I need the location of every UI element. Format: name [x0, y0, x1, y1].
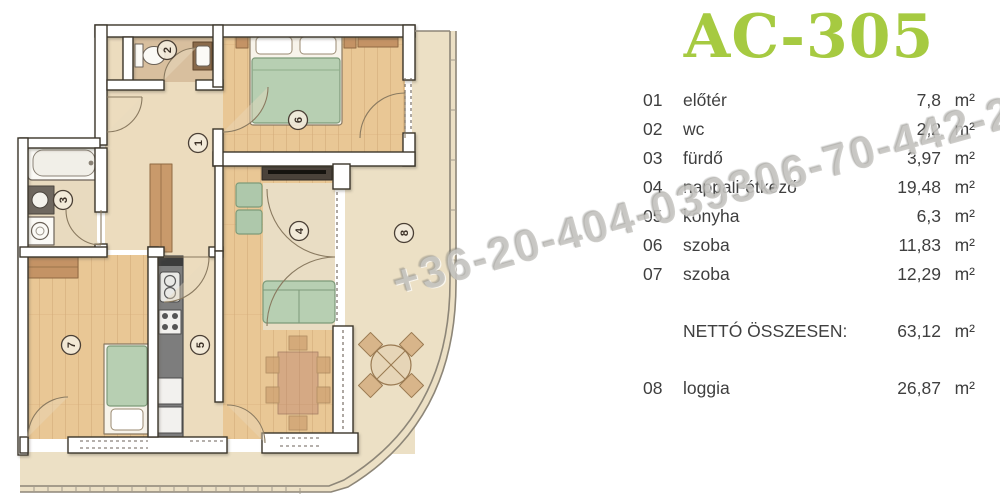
legend-row: 06 szoba 11,83 m²: [643, 231, 975, 260]
legend-rows: 01 előtér 7,8 m² 02 wc 2,2 m² 03 fürdő 3…: [643, 86, 975, 403]
room-name: wc: [683, 119, 865, 140]
room-number: 08: [643, 378, 683, 399]
room-area: 7,8: [865, 90, 941, 111]
room-marker-nappali: 4: [290, 222, 309, 241]
legend-row: 05 konyha 6,3 m²: [643, 202, 975, 231]
room-unit: m²: [941, 119, 975, 140]
room-unit: m²: [941, 177, 975, 198]
legend-row: 04 nappali-étkező 19,48 m²: [643, 173, 975, 202]
room-marker-szoba6: 6: [289, 111, 308, 130]
room-name: szoba: [683, 235, 865, 256]
room-marker-furdo: 3: [54, 191, 73, 210]
armchair-1: [236, 183, 262, 207]
legend-row: 02 wc 2,2 m²: [643, 115, 975, 144]
svg-text:5: 5: [195, 342, 207, 348]
room-area: 11,83: [865, 235, 941, 256]
room-number: 02: [643, 119, 683, 140]
legend-total-row: NETTÓ ÖSSZESEN: 63,12 m²: [643, 317, 975, 346]
room-number: 06: [643, 235, 683, 256]
room-marker-loggia: 8: [395, 224, 414, 243]
room-unit: m²: [941, 264, 975, 285]
room-name: előtér: [683, 90, 865, 111]
room-unit: m²: [941, 378, 975, 399]
svg-text:4: 4: [294, 227, 306, 234]
floors: [20, 31, 456, 492]
legend-row: 01 előtér 7,8 m²: [643, 86, 975, 115]
room-marker-wc: 2: [158, 41, 177, 60]
room-unit: m²: [941, 90, 975, 111]
room-number: 04: [643, 177, 683, 198]
room-marker-szoba7: 7: [62, 336, 81, 355]
room-name: nappali-étkező: [683, 177, 865, 198]
svg-text:7: 7: [66, 342, 78, 348]
room-area: 6,3: [865, 206, 941, 227]
room-name: konyha: [683, 206, 865, 227]
wc-sink: [193, 42, 212, 70]
sofa: [263, 281, 335, 323]
single-bed: [104, 344, 150, 434]
legend-row: 03 fürdő 3,97 m²: [643, 144, 975, 173]
room-unit: m²: [941, 206, 975, 227]
room-marker-konyha: 5: [191, 336, 210, 355]
room-name: szoba: [683, 264, 865, 285]
floorplan-page: 1 2 3 4 5 6 7: [0, 0, 1000, 504]
room-unit: m²: [941, 148, 975, 169]
room-area: 3,97: [865, 148, 941, 169]
total-unit: m²: [941, 321, 975, 342]
svg-text:1: 1: [193, 140, 205, 146]
room-name: loggia: [683, 378, 865, 399]
room-number: 03: [643, 148, 683, 169]
room-marker-eloter: 1: [189, 134, 208, 153]
room-area: 2,2: [865, 119, 941, 140]
bathtub: [28, 146, 100, 180]
room-area: 19,48: [865, 177, 941, 198]
room-loggia-floor-mid: [345, 164, 415, 454]
total-label: NETTÓ ÖSSZESEN:: [683, 321, 865, 342]
total-area: 63,12: [865, 321, 941, 342]
room-number: 01: [643, 90, 683, 111]
room-number: 05: [643, 206, 683, 227]
svg-text:8: 8: [399, 230, 411, 236]
svg-text:6: 6: [293, 117, 305, 123]
tv-console: [262, 167, 332, 180]
bath-vanity: [26, 186, 54, 214]
armchair-2: [236, 210, 262, 234]
legend-loggia-row: 08 loggia 26,87 m²: [643, 374, 975, 403]
legend-panel: AC-305 01 előtér 7,8 m² 02 wc 2,2 m² 03 …: [643, 0, 975, 403]
svg-text:2: 2: [162, 47, 174, 53]
room-area: 12,29: [865, 264, 941, 285]
room-unit: m²: [941, 235, 975, 256]
washing-machine: [26, 217, 54, 245]
page-title: AC-305: [643, 0, 975, 74]
svg-text:3: 3: [58, 197, 70, 203]
room-name: fürdő: [683, 148, 865, 169]
kitchen-counter: [157, 256, 183, 438]
legend-row: 07 szoba 12,29 m²: [643, 260, 975, 289]
floor-plan: 1 2 3 4 5 6 7: [0, 0, 470, 504]
room-number: 07: [643, 264, 683, 285]
room-area: 26,87: [865, 378, 941, 399]
